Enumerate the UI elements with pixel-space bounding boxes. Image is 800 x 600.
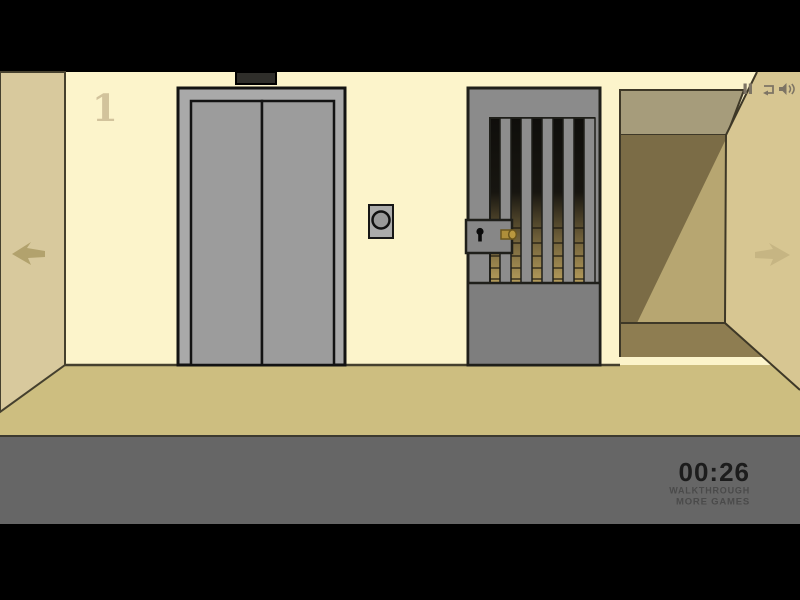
letterbox-top bbox=[0, 0, 800, 72]
corridor-ceiling bbox=[620, 90, 744, 135]
more-games-link[interactable]: MORE GAMES bbox=[676, 497, 750, 508]
floor-number: 1 bbox=[92, 86, 118, 130]
walkthrough-link[interactable]: WALKTHROUGH bbox=[669, 486, 750, 496]
key-icon[interactable] bbox=[501, 230, 516, 239]
elevator-door-right[interactable] bbox=[262, 101, 334, 365]
elevator bbox=[178, 72, 345, 365]
left-wall bbox=[0, 72, 65, 412]
gate-lower-panel bbox=[468, 283, 600, 365]
letterbox-bottom bbox=[0, 524, 800, 600]
barred-gate[interactable] bbox=[466, 88, 600, 365]
call-button-panel[interactable] bbox=[369, 205, 393, 238]
elevator-indicator bbox=[236, 72, 276, 84]
game-stage: 1 bbox=[0, 0, 800, 600]
floor bbox=[0, 365, 800, 437]
call-button[interactable] bbox=[373, 212, 390, 229]
elevator-door-left[interactable] bbox=[191, 101, 262, 365]
timer-display: 00:26 bbox=[679, 457, 751, 487]
